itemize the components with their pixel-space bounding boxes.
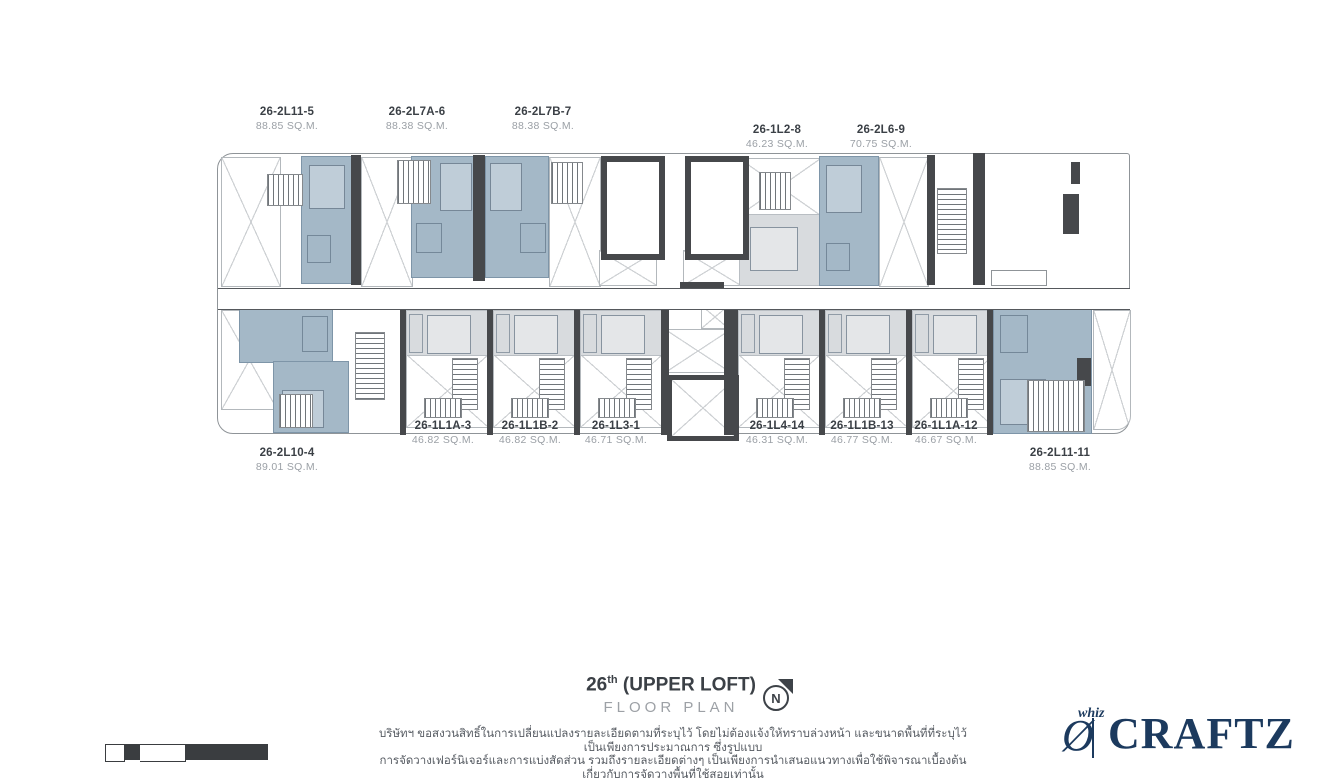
closet-icon xyxy=(583,314,597,353)
stair-icon xyxy=(551,162,583,204)
closet-icon xyxy=(496,314,510,353)
loft-unit-bed-area xyxy=(825,310,908,356)
unit-label: 26-2L11-588.85 SQ.M. xyxy=(256,106,318,132)
unit-label: 26-1L1A-346.82 SQ.M. xyxy=(412,420,474,446)
void-area xyxy=(1093,310,1131,430)
unit-label: 26-2L11-1188.85 SQ.M. xyxy=(1029,447,1091,473)
stair-icon xyxy=(843,398,881,418)
stair-icon xyxy=(598,398,636,418)
closet-icon xyxy=(828,314,842,353)
unit-shape-26-2l11-5 xyxy=(301,156,353,284)
unit-label: 26-2L10-489.01 SQ.M. xyxy=(256,447,318,473)
bathroom-icon xyxy=(307,235,331,263)
scale-bar xyxy=(105,744,268,760)
bathroom-icon xyxy=(520,223,546,253)
bathroom-icon xyxy=(416,223,442,253)
unit-label: 26-2L6-970.75 SQ.M. xyxy=(850,124,912,150)
bathroom-icon xyxy=(302,316,328,352)
brand-monogram-icon: Ø xyxy=(1062,714,1094,758)
disclaimer-line-2: การจัดวางเฟอร์นิเจอร์และการแบ่งสัดส่วน ร… xyxy=(371,755,975,782)
loft-unit-bed-area xyxy=(580,310,663,356)
unit-label: 26-1L2-846.23 SQ.M. xyxy=(746,124,808,150)
wall-segment xyxy=(473,155,485,281)
scale-bar-segment xyxy=(125,744,140,760)
unit-shape-26-2l10-4 xyxy=(239,309,333,363)
stair-icon xyxy=(279,394,313,428)
wall-segment xyxy=(973,153,985,285)
bed-icon xyxy=(427,315,471,354)
unit-label: 26-1L3-146.71 SQ.M. xyxy=(585,420,647,446)
wall-segment xyxy=(400,308,406,435)
bed-icon xyxy=(846,315,890,354)
bed-icon xyxy=(750,227,798,271)
loft-unit-bed-area xyxy=(738,310,821,356)
stair-icon xyxy=(930,398,968,418)
compass-circle: N xyxy=(763,685,789,711)
bed-icon xyxy=(601,315,645,354)
wall-segment xyxy=(724,305,732,435)
bed-icon xyxy=(490,163,522,211)
bed-icon xyxy=(440,163,472,211)
wall-segment xyxy=(906,308,912,435)
stair-icon xyxy=(355,332,385,400)
stair-icon xyxy=(1027,380,1085,432)
brand-logo: whiz Ø CRAFTZ xyxy=(1062,702,1302,772)
wall-segment xyxy=(574,308,580,435)
brand-logo-craftz: CRAFTZ xyxy=(1108,708,1295,759)
stair-icon xyxy=(937,188,967,254)
loft-unit-bed-area xyxy=(912,310,995,356)
scale-bar-segment xyxy=(140,744,186,762)
bed-icon xyxy=(514,315,558,354)
column xyxy=(1063,194,1079,234)
wall-segment xyxy=(927,155,935,285)
stair-icon xyxy=(756,398,794,418)
scale-bar-segment xyxy=(186,744,268,760)
loft-unit-bed-area xyxy=(406,310,489,356)
bathroom-icon xyxy=(826,243,850,271)
north-compass-icon: N xyxy=(761,683,791,713)
closet-icon xyxy=(915,314,929,353)
closet-icon xyxy=(409,314,423,353)
floor-plan-drawing xyxy=(215,148,1135,440)
unit-label: 26-1L1B-246.82 SQ.M. xyxy=(499,420,561,446)
disclaimer-text: บริษัทฯ ขอสงวนสิทธิ์ในการเปลี่ยนแปลงรายล… xyxy=(371,728,975,782)
unit-label: 26-2L7A-688.38 SQ.M. xyxy=(386,106,448,132)
corridor xyxy=(218,288,1130,310)
unit-shape-26-2l6-9 xyxy=(819,156,879,286)
disclaimer-line-1: บริษัทฯ ขอสงวนสิทธิ์ในการเปลี่ยนแปลงรายล… xyxy=(371,728,975,755)
wall-segment xyxy=(680,282,724,288)
unit-label: 26-1L4-1446.31 SQ.M. xyxy=(746,420,808,446)
bed-icon xyxy=(933,315,977,354)
brand-monogram-bar xyxy=(1092,718,1094,758)
wall-segment xyxy=(819,308,825,435)
stair-icon xyxy=(759,172,791,210)
void-area xyxy=(665,329,731,373)
void-area xyxy=(879,157,929,287)
unit-shape-26-2l7b-7 xyxy=(485,156,549,278)
stair-icon xyxy=(424,398,462,418)
wall-segment xyxy=(987,308,993,435)
unit-label: 26-1L1B-1346.77 SQ.M. xyxy=(830,420,893,446)
elevator-shaft xyxy=(601,156,665,260)
unit-label: 26-2L7B-788.38 SQ.M. xyxy=(512,106,574,132)
bed-icon xyxy=(309,165,345,209)
closet-icon xyxy=(741,314,755,353)
unit-label: 26-1L1A-1246.67 SQ.M. xyxy=(914,420,977,446)
column xyxy=(1071,162,1080,184)
bed-icon xyxy=(826,165,862,213)
unit-shape-26-1l2-8 xyxy=(739,214,821,286)
wall-segment xyxy=(351,155,361,285)
elevator-shaft xyxy=(685,156,749,260)
stair-icon xyxy=(267,174,303,206)
stair-icon xyxy=(397,160,431,204)
planter-box xyxy=(991,270,1047,286)
stair-icon xyxy=(511,398,549,418)
loft-unit-bed-area xyxy=(493,310,576,356)
wall-segment xyxy=(732,308,738,435)
scale-bar-segment xyxy=(105,744,125,762)
wall-segment xyxy=(661,305,669,435)
wall-segment xyxy=(487,308,493,435)
bathroom-icon xyxy=(1000,315,1028,353)
bed-icon xyxy=(759,315,803,354)
